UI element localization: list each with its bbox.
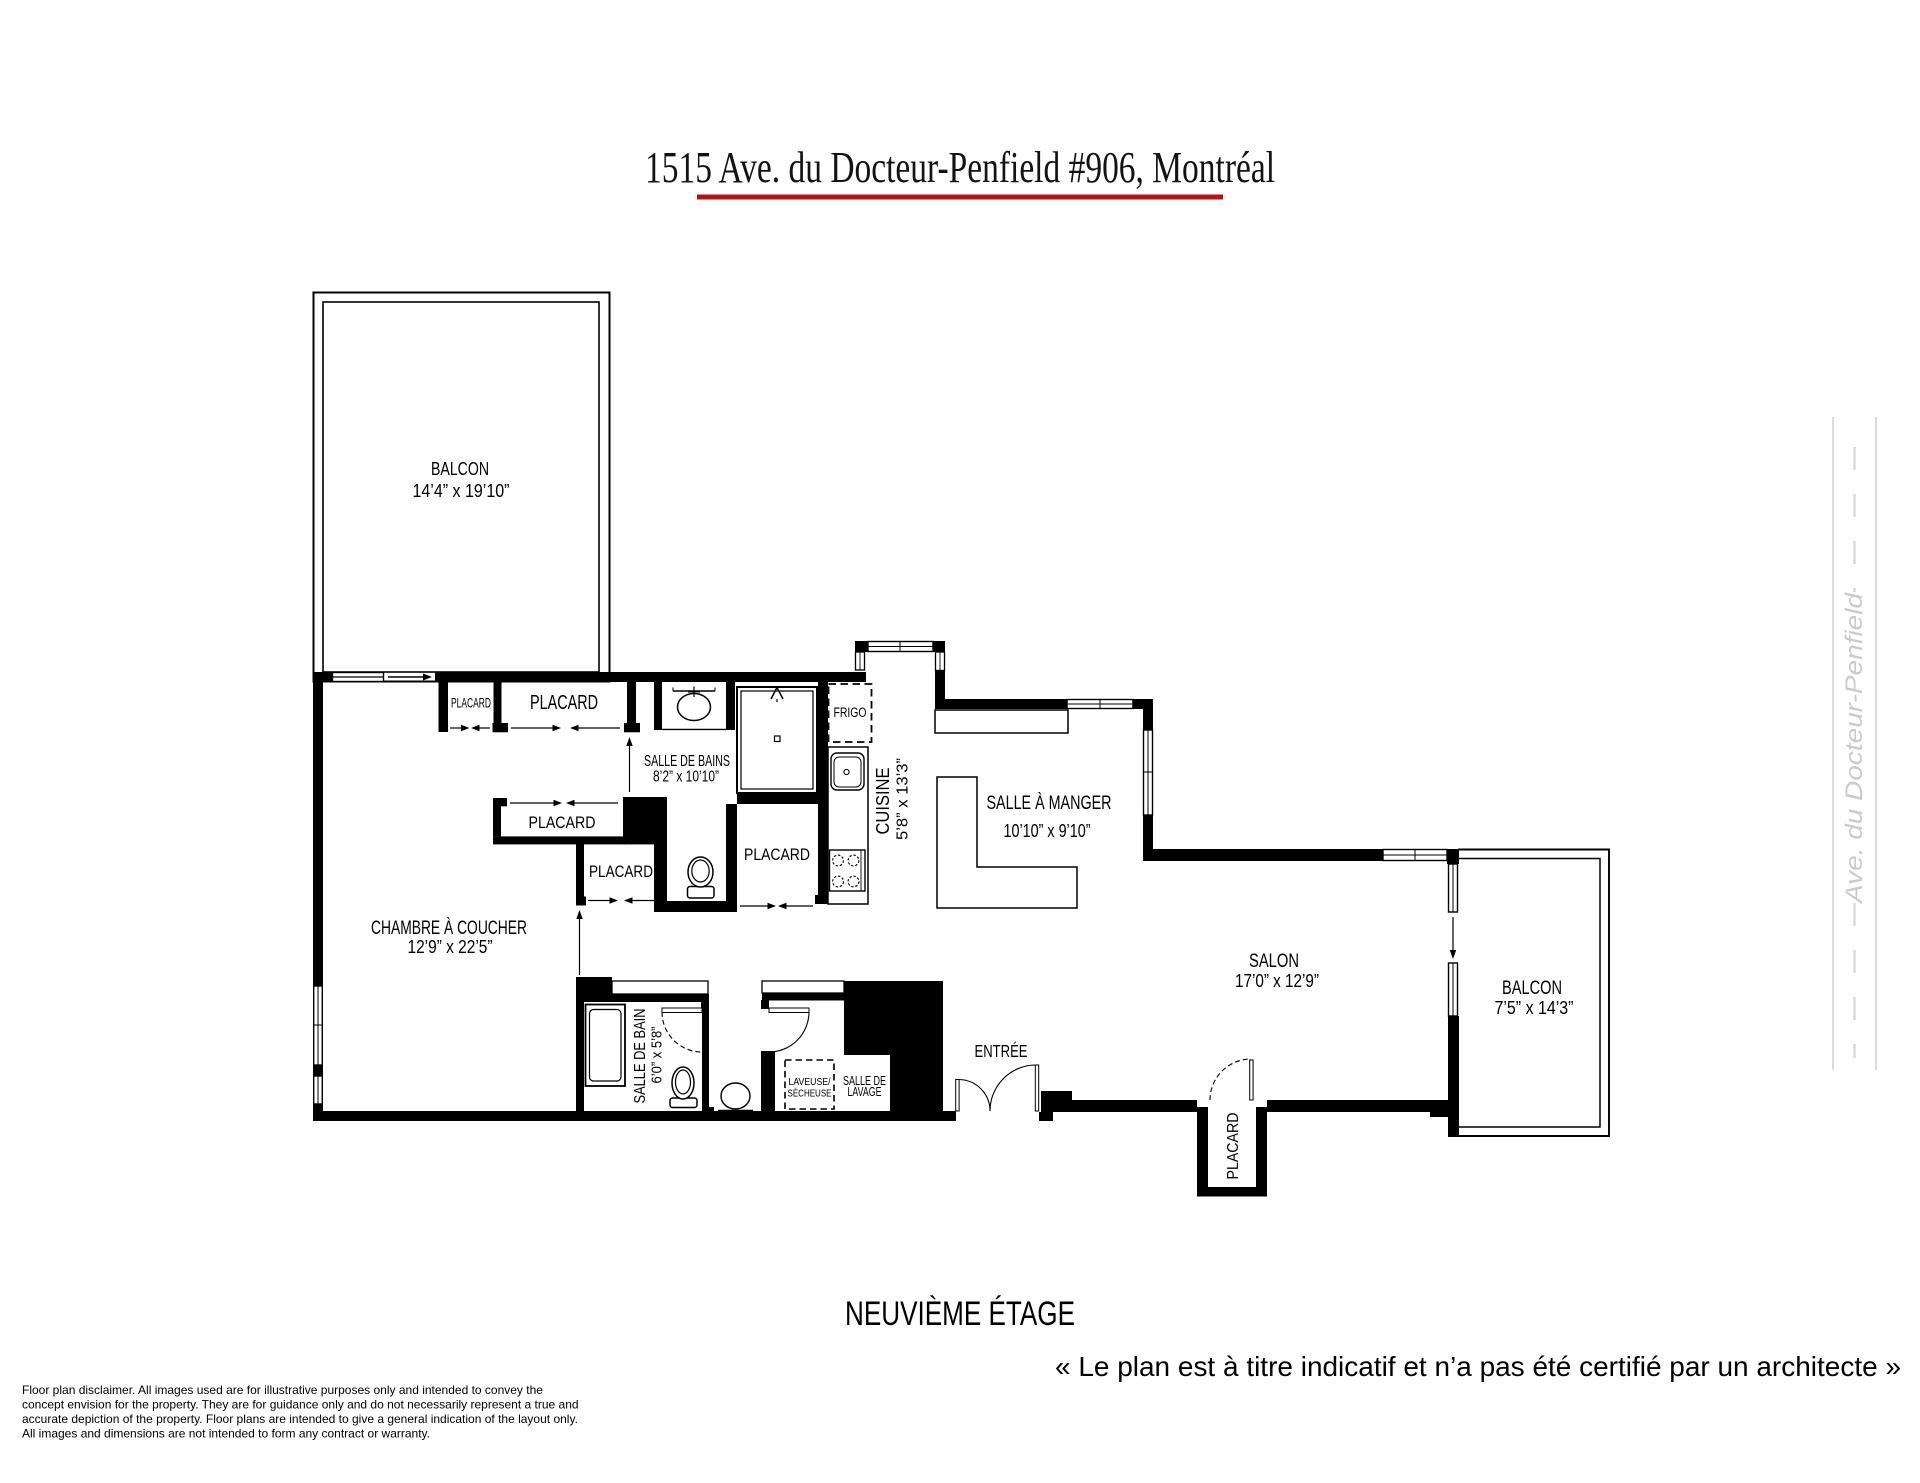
svg-text:SALLE DE BAIN: SALLE DE BAIN xyxy=(632,1009,649,1104)
svg-text:1515 Ave. du Docteur-Penfield: 1515 Ave. du Docteur-Penfield #906, Mont… xyxy=(645,143,1275,192)
svg-text:8’2” x 10’10”: 8’2” x 10’10” xyxy=(653,769,719,786)
svg-text:PLACARD: PLACARD xyxy=(744,846,810,864)
svg-text:« Le plan est à titre indicati: « Le plan est à titre indicatif et n’a p… xyxy=(1055,1351,1901,1382)
svg-text:CUISINE: CUISINE xyxy=(873,768,893,835)
svg-text:PLACARD: PLACARD xyxy=(589,863,653,881)
svg-text:Ave. du Docteur-Penfield: Ave. du Docteur-Penfield xyxy=(1841,592,1868,905)
svg-text:PLACARD: PLACARD xyxy=(1225,1113,1242,1180)
svg-text:SÉCHEUSE: SÉCHEUSE xyxy=(788,1087,832,1100)
svg-text:10’10” x 9’10”: 10’10” x 9’10” xyxy=(1004,820,1091,841)
svg-text:BALCON: BALCON xyxy=(1502,978,1562,999)
svg-text:SALLE DE BAINS: SALLE DE BAINS xyxy=(644,753,730,770)
svg-text:NEUVIÈME ÉTAGE: NEUVIÈME ÉTAGE xyxy=(845,1295,1075,1333)
svg-text:14’4” x 19’10”: 14’4” x 19’10” xyxy=(413,480,510,501)
svg-text:accurate depiction of the prop: accurate depiction of the property. Floo… xyxy=(22,1412,578,1426)
svg-text:6’0” x 5’8”: 6’0” x 5’8” xyxy=(649,1026,666,1083)
svg-text:PLACARD: PLACARD xyxy=(530,692,598,714)
svg-text:All images and dimensions are: All images and dimensions are not intend… xyxy=(22,1427,430,1441)
svg-text:5’8” x 13’3”: 5’8” x 13’3” xyxy=(895,758,912,840)
svg-text:12’9” x 22’5”: 12’9” x 22’5” xyxy=(408,936,493,957)
svg-text:PLACARD: PLACARD xyxy=(451,695,491,711)
svg-text:PLACARD: PLACARD xyxy=(529,814,596,832)
svg-text:Floor plan disclaimer. All ima: Floor plan disclaimer. All images used a… xyxy=(22,1383,543,1397)
svg-text:BALCON: BALCON xyxy=(431,458,489,479)
svg-text:LAVEUSE/: LAVEUSE/ xyxy=(789,1077,831,1088)
svg-text:concept envision for the prope: concept envision for the property. They … xyxy=(22,1398,579,1412)
svg-text:LAVAGE: LAVAGE xyxy=(848,1084,882,1099)
svg-text:ENTRÉE: ENTRÉE xyxy=(975,1041,1028,1061)
svg-text:SALLE À MANGER: SALLE À MANGER xyxy=(987,793,1112,814)
svg-text:SALON: SALON xyxy=(1249,951,1299,972)
svg-text:7’5” x 14’3”: 7’5” x 14’3” xyxy=(1495,997,1574,1018)
svg-text:FRIGO: FRIGO xyxy=(834,705,867,720)
svg-text:17’0” x 12’9”: 17’0” x 12’9” xyxy=(1235,970,1319,991)
